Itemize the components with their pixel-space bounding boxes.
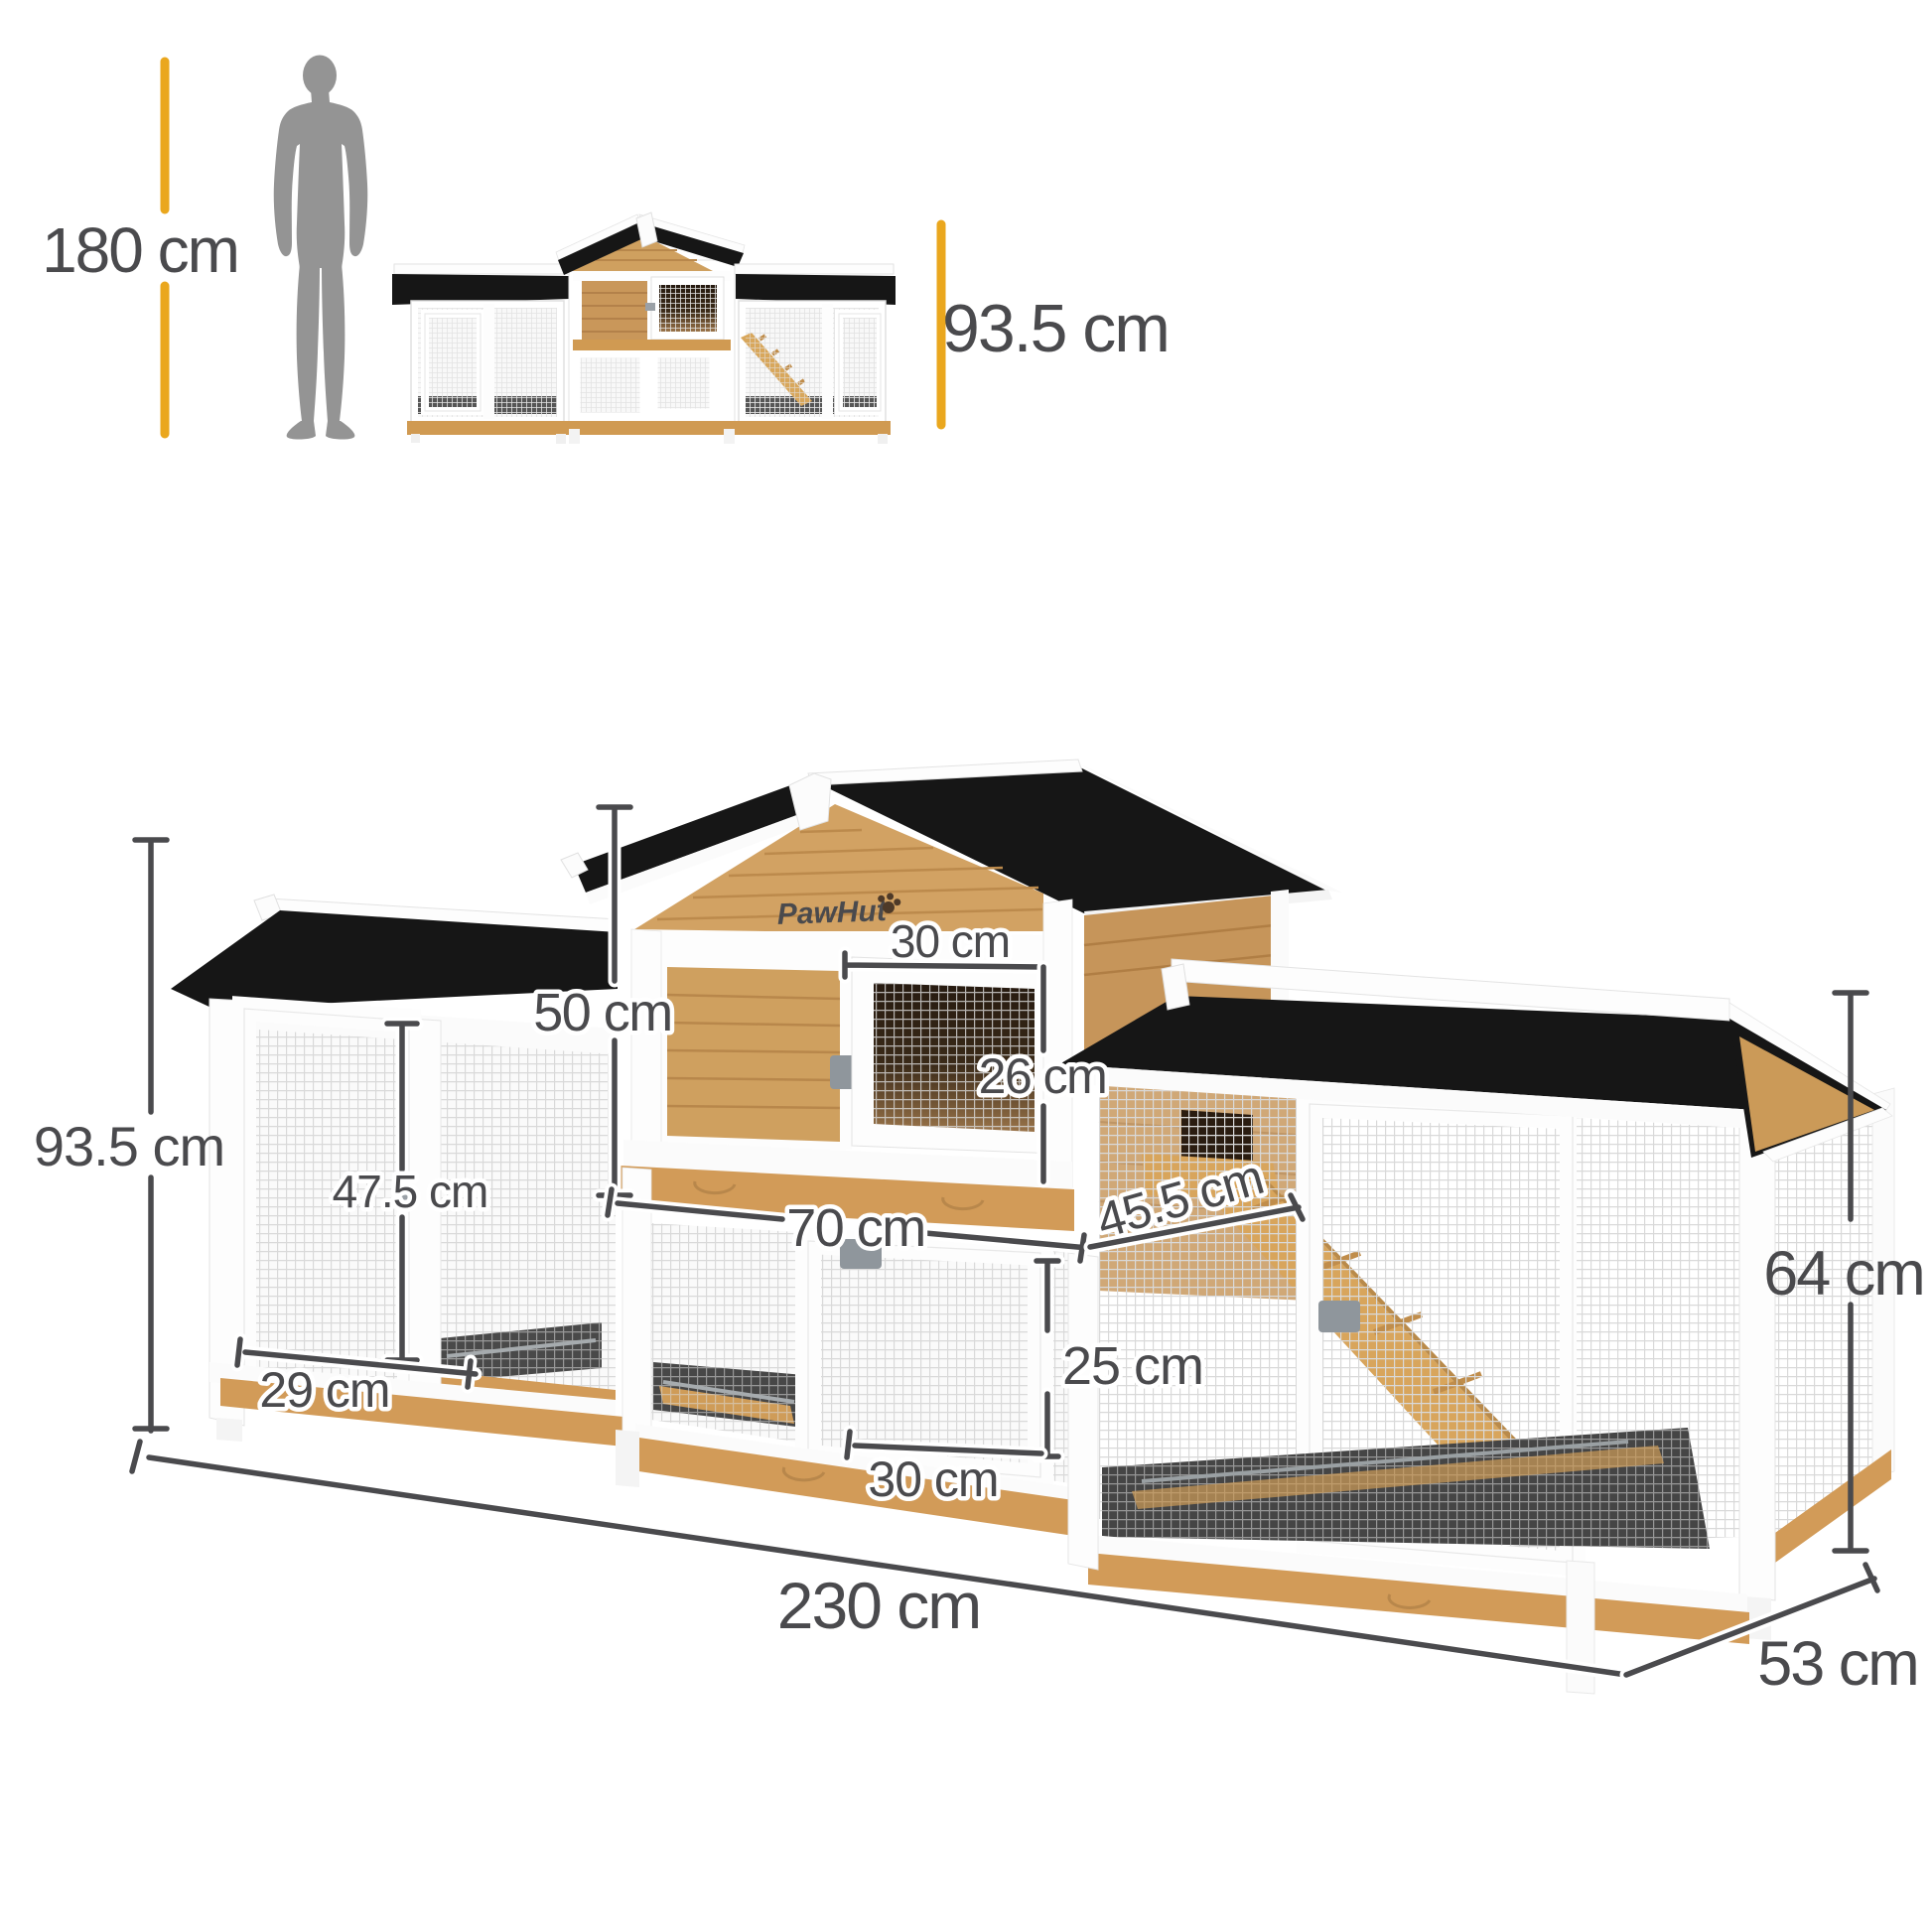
svg-text:180 cm: 180 cm	[42, 214, 238, 286]
svg-text:PawHut: PawHut	[776, 895, 889, 931]
svg-text:230 cm: 230 cm	[777, 1569, 980, 1642]
svg-text:25 cm: 25 cm	[1062, 1336, 1203, 1396]
svg-text:53 cm: 53 cm	[1757, 1629, 1918, 1699]
svg-text:93.5 cm: 93.5 cm	[34, 1115, 224, 1177]
svg-text:30 cm: 30 cm	[891, 915, 1010, 967]
svg-text:29 cm: 29 cm	[259, 1362, 389, 1418]
svg-text:93.5 cm: 93.5 cm	[942, 291, 1169, 366]
svg-text:26 cm: 26 cm	[979, 1048, 1107, 1104]
svg-text:30 cm: 30 cm	[868, 1451, 998, 1507]
svg-text:50 cm: 50 cm	[533, 983, 672, 1042]
svg-text:70 cm: 70 cm	[786, 1198, 925, 1258]
svg-text:47.5 cm: 47.5 cm	[333, 1166, 488, 1217]
svg-text:64 cm: 64 cm	[1763, 1239, 1924, 1309]
